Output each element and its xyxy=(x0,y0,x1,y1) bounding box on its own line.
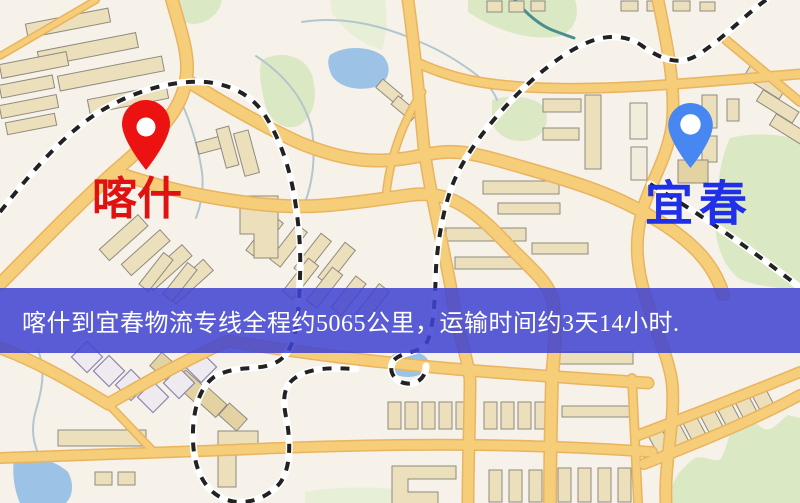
destination-city-label: 宜春 xyxy=(645,181,753,229)
origin-city-label: 喀什 xyxy=(92,177,182,222)
destination-pin-hole xyxy=(680,114,700,134)
route-info-text: 喀什到宜春物流专线全程约5065公里，运输时间约3天14小时. xyxy=(22,303,680,338)
origin-pin-hole xyxy=(137,118,156,137)
destination-pin-body xyxy=(668,103,713,168)
building-blocks xyxy=(0,1,800,503)
route-info-banner: 喀什到宜春物流专线全程约5065公里，运输时间约3天14小时. xyxy=(0,288,800,353)
destination-marker-icon[interactable] xyxy=(668,103,713,168)
origin-marker-icon[interactable] xyxy=(122,100,170,170)
map-canvas[interactable] xyxy=(0,0,800,503)
map-screenshot: 喀什 宜春 喀什到宜春物流专线全程约5065公里，运输时间约3天14小时. xyxy=(0,0,800,503)
